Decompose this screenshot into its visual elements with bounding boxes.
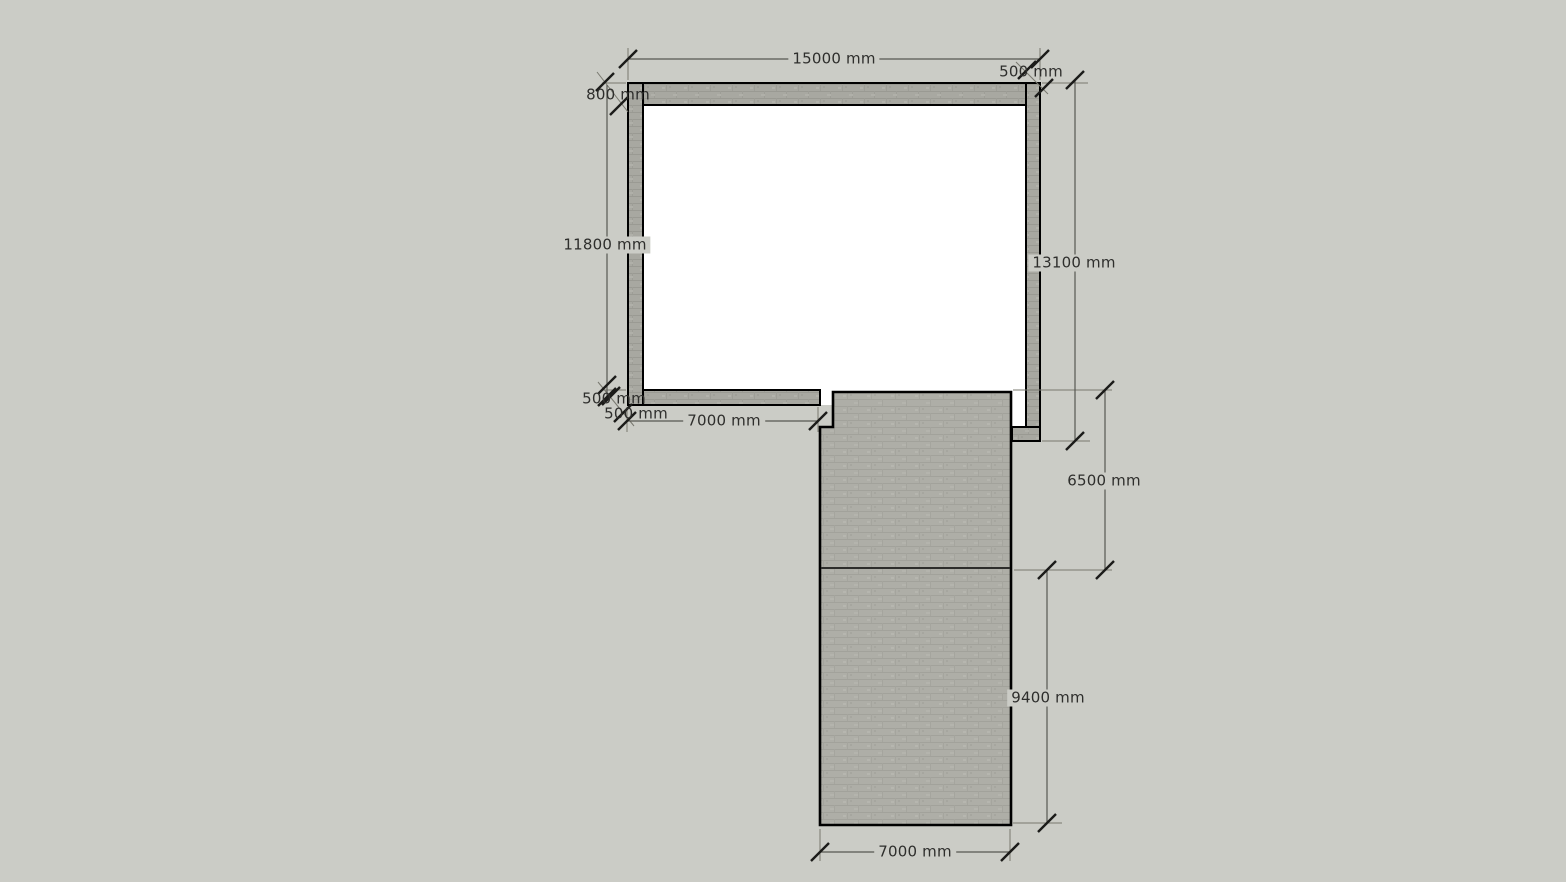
dim-label-top-wall-thickness: 800 mm bbox=[586, 87, 650, 104]
dim-label-left-height: 11800 mm bbox=[559, 237, 650, 254]
dim-label-left-wall-thickness: 500 mm bbox=[604, 406, 668, 423]
dim-label-corridor-upper-length: 6500 mm bbox=[1063, 473, 1145, 490]
room-interior bbox=[643, 105, 1026, 427]
bottom-wall bbox=[643, 390, 820, 405]
dim-label-corridor-width: 7000 mm bbox=[874, 844, 956, 861]
cad-viewport[interactable]: 15000 mm 500 mm 800 mm 11800 mm 13100 mm… bbox=[0, 0, 1566, 882]
dim-label-right-height: 13100 mm bbox=[1028, 255, 1119, 272]
bottom-right-wall bbox=[1012, 427, 1040, 441]
dim-label-overall-width: 15000 mm bbox=[788, 51, 879, 68]
top-wall bbox=[643, 83, 1026, 105]
dim-label-bottom-wall-length: 7000 mm bbox=[683, 413, 765, 430]
dim-label-corridor-lower-length: 9400 mm bbox=[1007, 690, 1089, 707]
floor-plan-drawing bbox=[0, 0, 1566, 882]
corridor-slab bbox=[820, 392, 1011, 825]
dim-label-right-wall-thickness: 500 mm bbox=[999, 64, 1063, 81]
